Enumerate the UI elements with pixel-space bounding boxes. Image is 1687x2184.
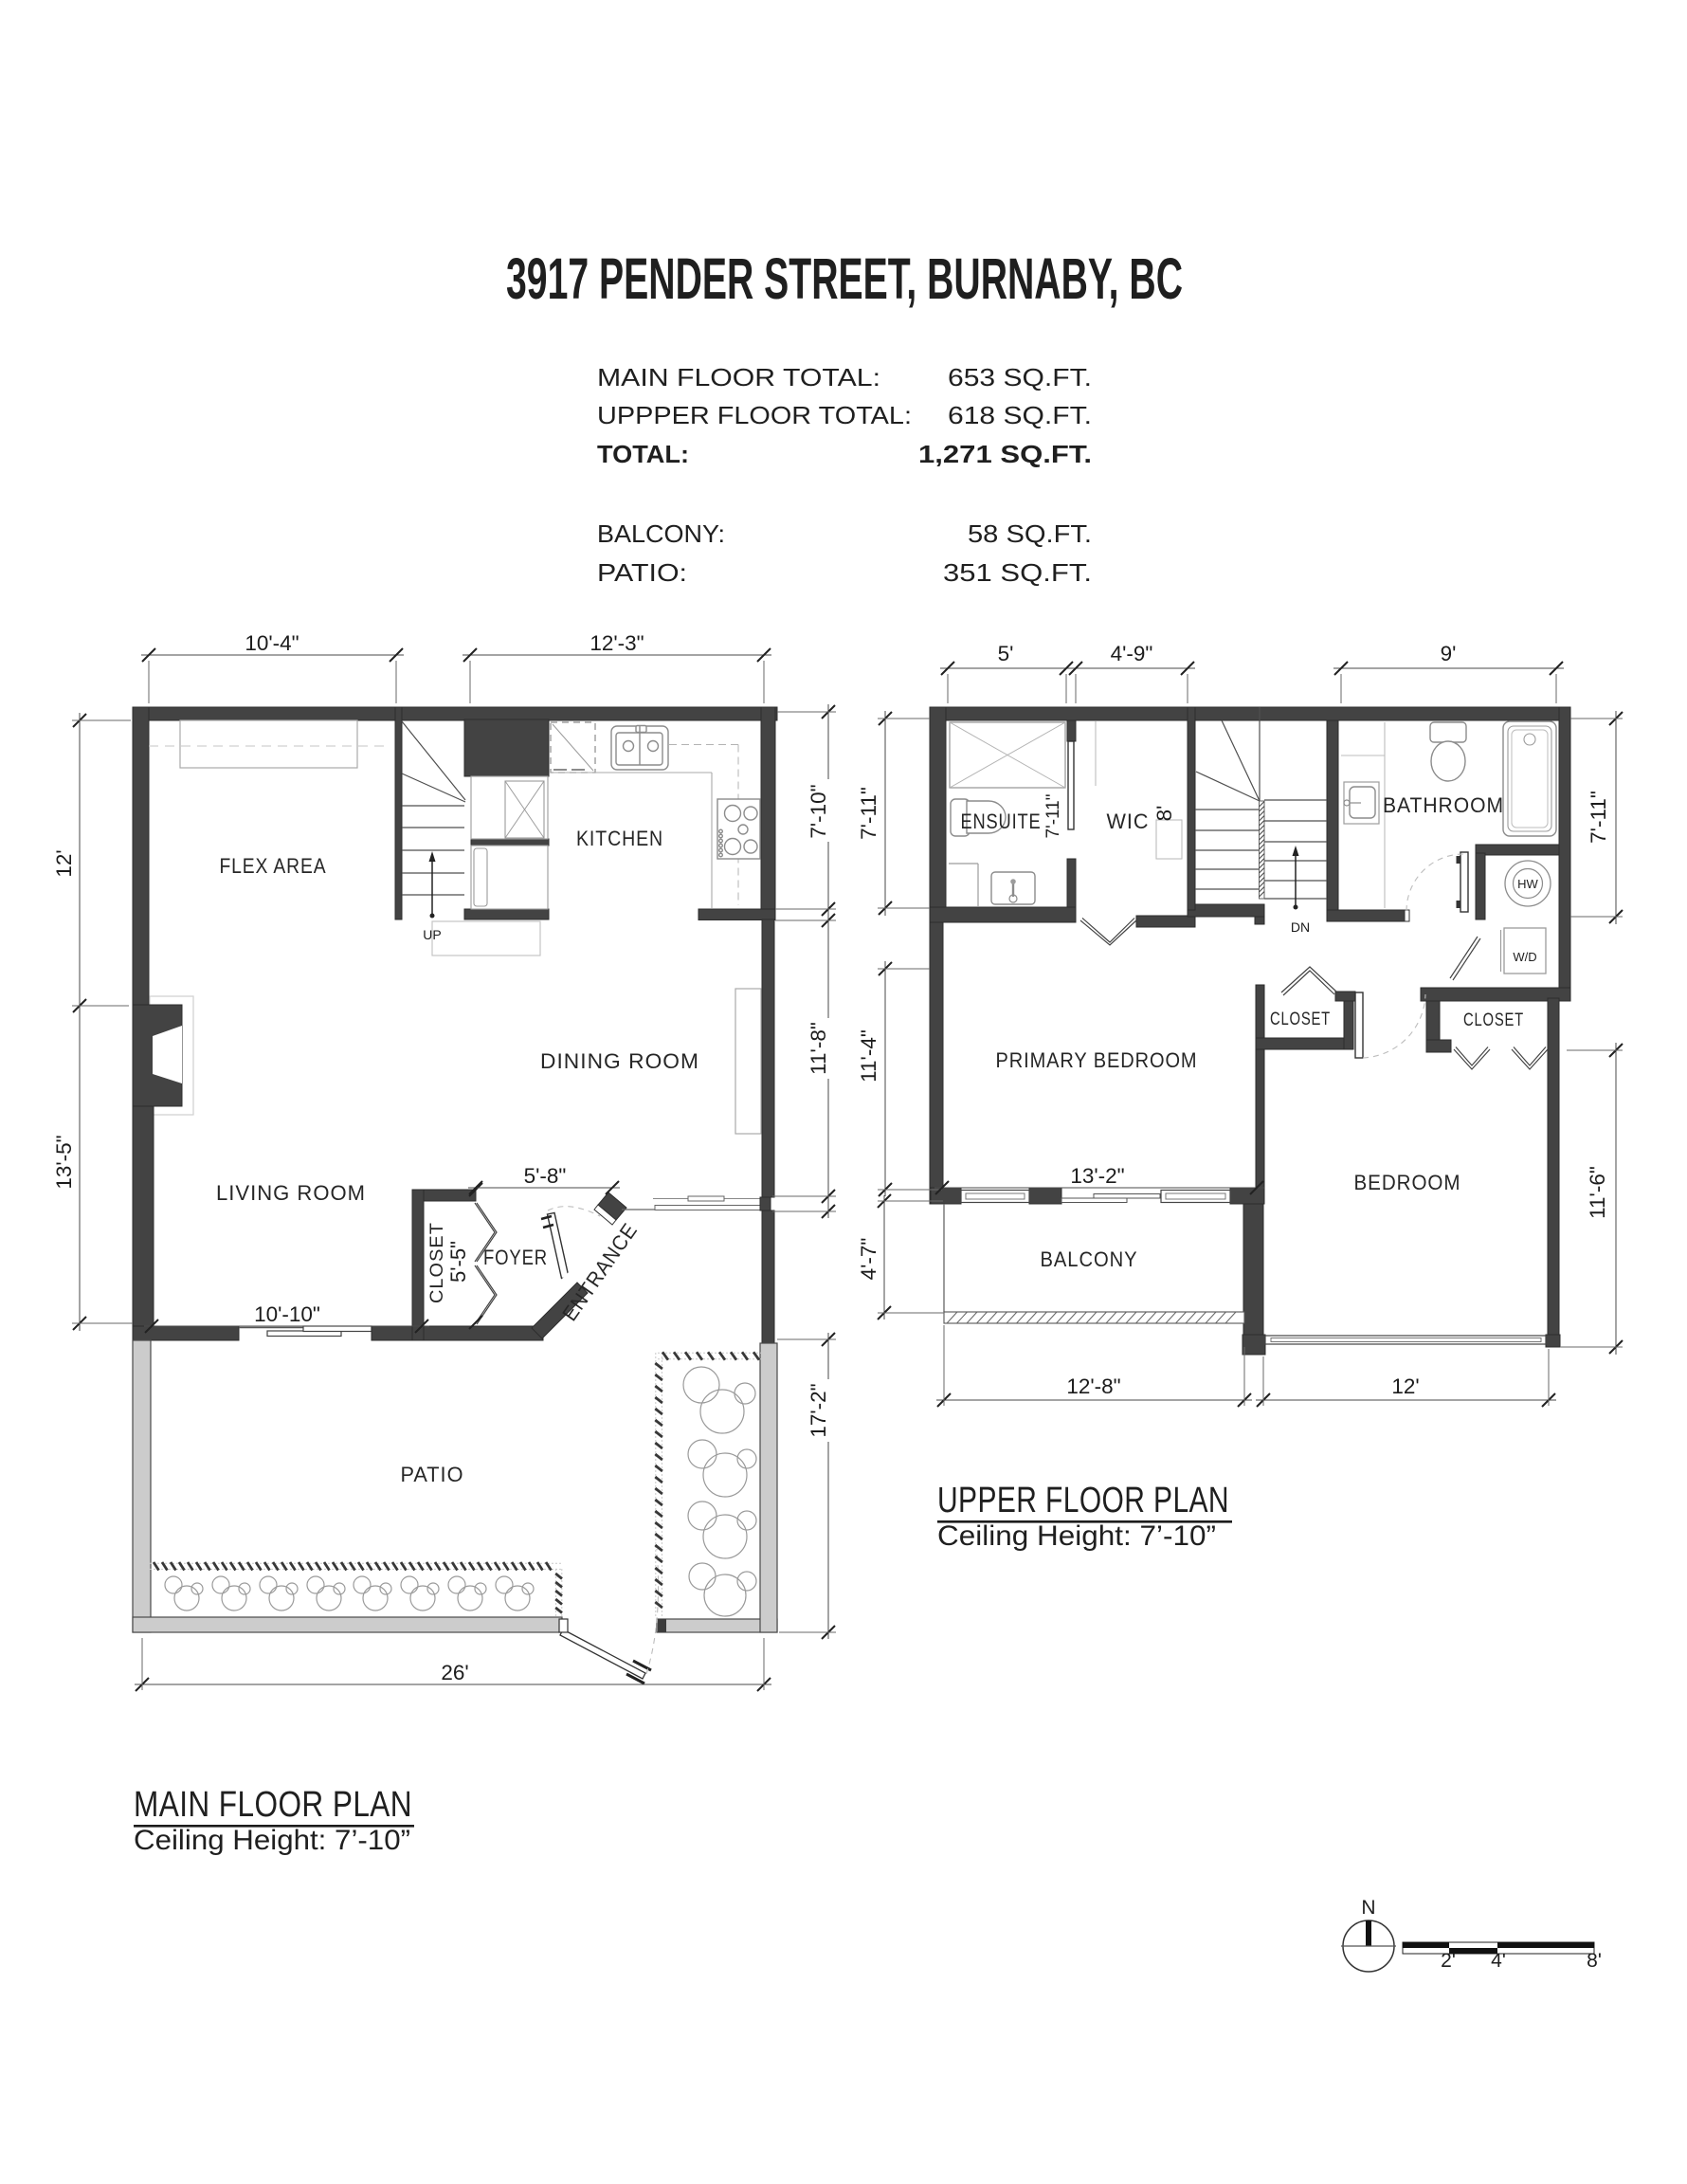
svg-text:CLOSET: CLOSET — [1270, 1010, 1331, 1029]
svg-text:618 SQ.FT.: 618 SQ.FT. — [948, 401, 1092, 429]
svg-text:5'-5": 5'-5" — [446, 1241, 470, 1283]
svg-text:UPPER FLOOR PLAN: UPPER FLOOR PLAN — [937, 1481, 1229, 1520]
svg-text:UPPPER FLOOR TOTAL:: UPPPER FLOOR TOTAL: — [597, 401, 912, 429]
svg-text:11'-4": 11'-4" — [857, 1029, 880, 1083]
svg-text:TOTAL:: TOTAL: — [597, 440, 689, 468]
svg-text:BALCONY: BALCONY — [1041, 1247, 1138, 1271]
svg-text:FLEX AREA: FLEX AREA — [220, 854, 327, 878]
svg-text:13'-2": 13'-2" — [1070, 1164, 1124, 1188]
svg-text:26': 26' — [441, 1661, 468, 1684]
svg-text:5'-8": 5'-8" — [524, 1164, 567, 1188]
svg-text:3917 PENDER STREET, BURNABY, B: 3917 PENDER STREET, BURNABY, BC — [506, 246, 1183, 311]
svg-text:WIC: WIC — [1107, 810, 1150, 833]
svg-text:7'-11": 7'-11" — [857, 787, 880, 840]
svg-text:12'-8": 12'-8" — [1066, 1374, 1120, 1398]
svg-text:BATHROOM: BATHROOM — [1383, 793, 1504, 817]
svg-text:W/D: W/D — [1513, 950, 1536, 964]
svg-text:8': 8' — [1152, 806, 1176, 822]
svg-text:8': 8' — [1587, 1950, 1602, 1972]
svg-text:13'-5": 13'-5" — [52, 1135, 76, 1189]
svg-text:HW: HW — [1517, 877, 1538, 891]
svg-text:2': 2' — [1441, 1950, 1456, 1972]
svg-text:KITCHEN: KITCHEN — [576, 827, 663, 850]
svg-text:10'-10": 10'-10" — [254, 1302, 320, 1326]
svg-text:FOYER: FOYER — [483, 1246, 548, 1269]
svg-text:PATIO:: PATIO: — [597, 558, 687, 587]
svg-text:LIVING ROOM: LIVING ROOM — [216, 1181, 366, 1205]
svg-text:17'-2": 17'-2" — [807, 1383, 830, 1437]
svg-text:11'-8": 11'-8" — [807, 1022, 830, 1075]
svg-text:CLOSET: CLOSET — [427, 1222, 447, 1303]
svg-text:Ceiling Height: 7’-10”: Ceiling Height: 7’-10” — [937, 1520, 1216, 1552]
svg-text:DINING ROOM: DINING ROOM — [540, 1049, 699, 1073]
svg-text:1,271 SQ.FT.: 1,271 SQ.FT. — [918, 440, 1092, 468]
svg-text:N: N — [1361, 1897, 1375, 1919]
svg-text:653 SQ.FT.: 653 SQ.FT. — [948, 363, 1092, 391]
svg-text:PATIO: PATIO — [401, 1463, 464, 1486]
svg-text:12'-3": 12'-3" — [590, 631, 644, 655]
svg-text:7'-11": 7'-11" — [1587, 791, 1610, 844]
svg-text:12': 12' — [1391, 1374, 1419, 1398]
svg-text:7'-11": 7'-11" — [1043, 794, 1063, 839]
svg-text:BALCONY:: BALCONY: — [597, 519, 725, 548]
svg-text:BEDROOM: BEDROOM — [1354, 1171, 1461, 1194]
svg-text:5': 5' — [998, 642, 1014, 665]
svg-text:7'-10": 7'-10" — [807, 784, 830, 838]
svg-text:CLOSET: CLOSET — [1463, 1010, 1524, 1030]
svg-text:58 SQ.FT.: 58 SQ.FT. — [968, 519, 1092, 548]
svg-text:12': 12' — [52, 849, 76, 877]
svg-text:4'-7": 4'-7" — [857, 1238, 880, 1281]
svg-text:10'-4": 10'-4" — [245, 631, 299, 655]
svg-text:9': 9' — [1441, 642, 1457, 665]
svg-text:PRIMARY BEDROOM: PRIMARY BEDROOM — [996, 1048, 1198, 1072]
svg-text:11'-6": 11'-6" — [1586, 1166, 1609, 1219]
svg-text:ENSUITE: ENSUITE — [961, 810, 1042, 833]
svg-text:MAIN FLOOR PLAN: MAIN FLOOR PLAN — [134, 1785, 412, 1825]
svg-text:4': 4' — [1491, 1950, 1506, 1972]
svg-text:DN: DN — [1291, 919, 1310, 935]
svg-text:4'-9": 4'-9" — [1111, 642, 1153, 665]
svg-text:MAIN FLOOR TOTAL:: MAIN FLOOR TOTAL: — [597, 363, 880, 391]
svg-text:351 SQ.FT.: 351 SQ.FT. — [943, 558, 1092, 587]
svg-text:Ceiling Height: 7’-10”: Ceiling Height: 7’-10” — [134, 1825, 410, 1856]
